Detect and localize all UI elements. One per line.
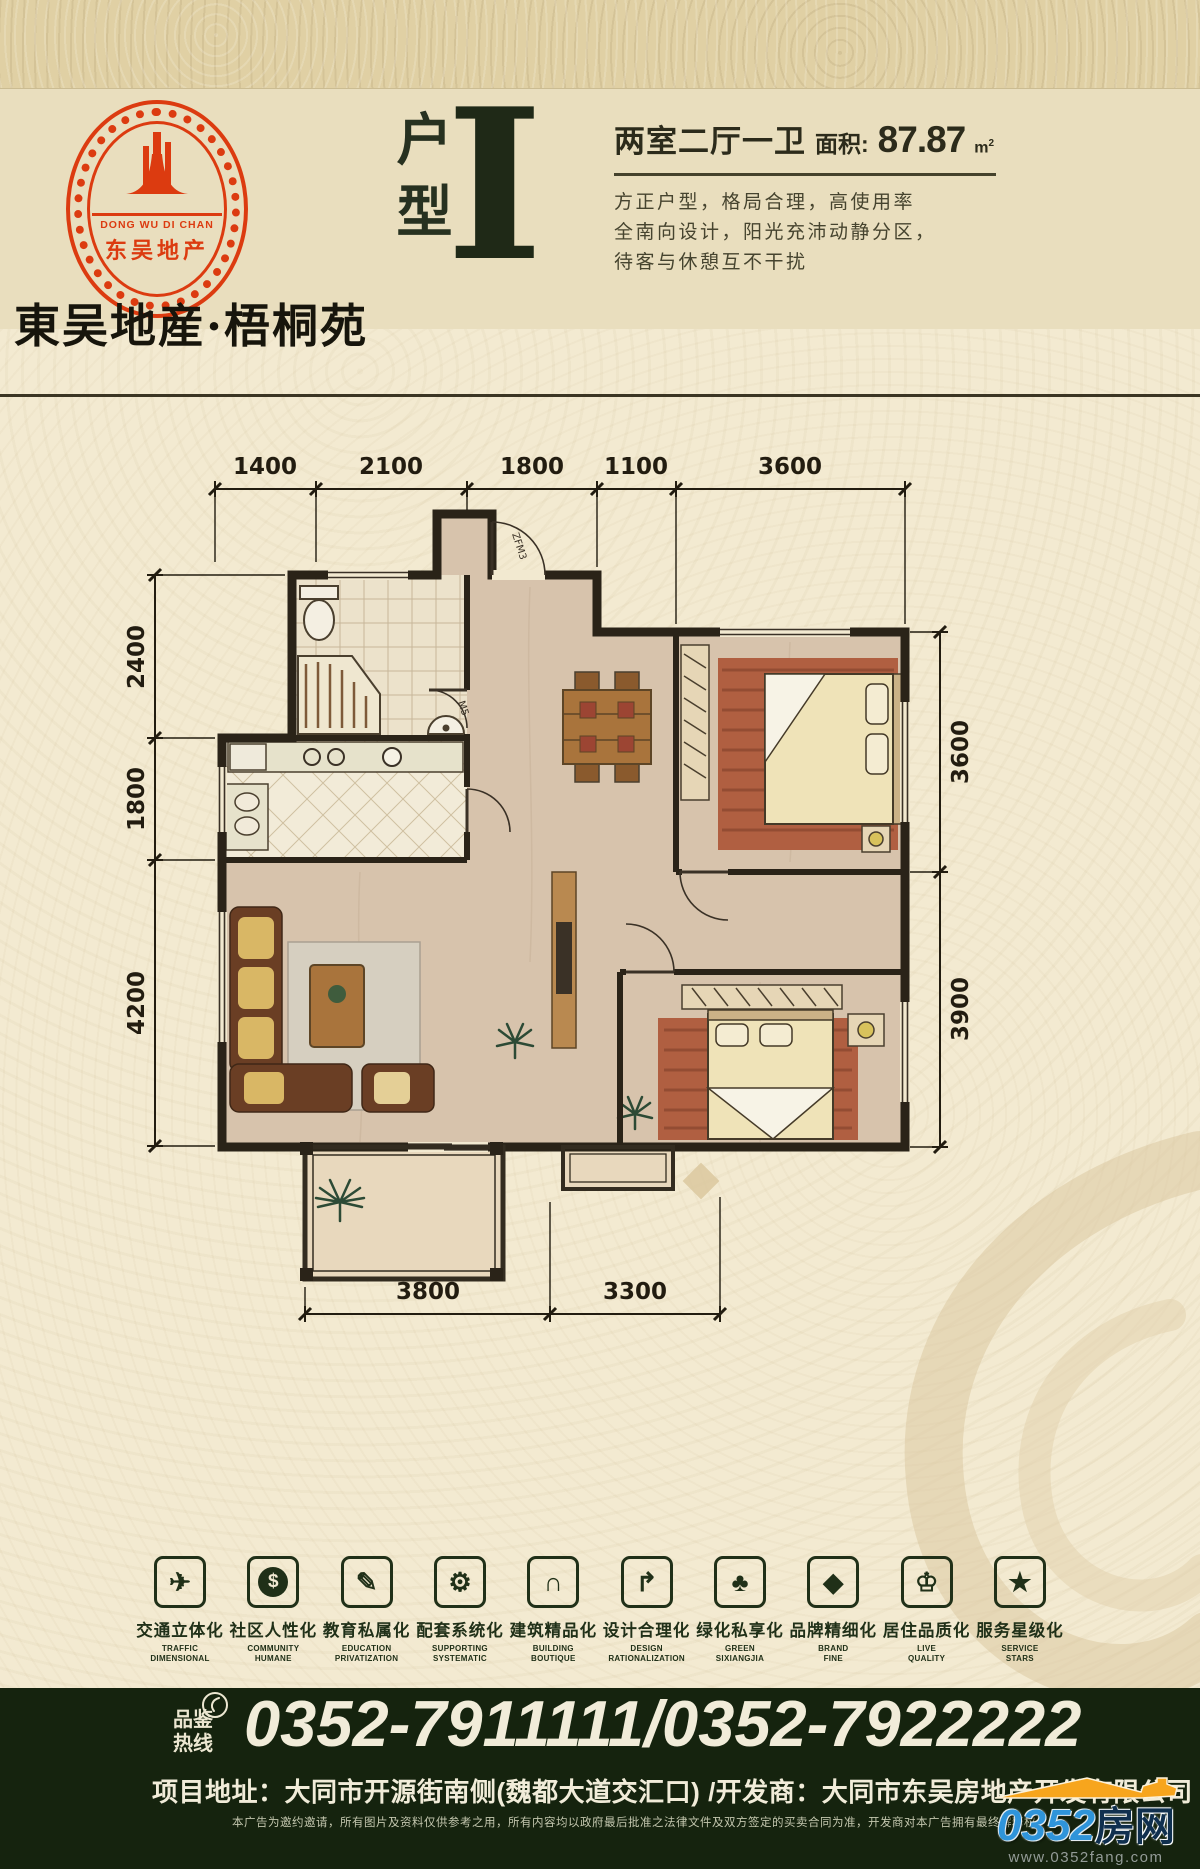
disclaimer-text: 本广告为邀约邀请，所有图片及资料仅供参考之用，所有内容均以政府最后批准之法律文件… <box>160 1814 1120 1830</box>
hotline-label: 品鉴 热线 <box>150 1708 236 1756</box>
feature-building: ∩ 建筑精品化 BUILDINGBOUTIQUE <box>507 1556 599 1663</box>
svg-text:1800: 1800 <box>124 767 150 831</box>
unit-summary-row: 两室二厅一卫 面积: 87.87 m2 <box>614 116 996 176</box>
footer-bar: 品鉴 热线 0352-7911111/0352-7922222 项目地址：大同市… <box>0 1688 1200 1869</box>
tree-icon: ♣ <box>714 1556 766 1608</box>
feature-service: ★ 服务星级化 SERVICESTARS <box>974 1556 1066 1663</box>
feature-design: ↱ 设计合理化 DESIGNRATIONALIZATION <box>601 1556 693 1663</box>
site-url: www.0352fang.com <box>986 1849 1186 1866</box>
desc-line-3: 待客与休憩互不干扰 <box>614 248 996 278</box>
svg-text:3900: 3900 <box>948 977 974 1041</box>
dollar-clock-icon: $ <box>247 1556 299 1608</box>
top-pattern-strip <box>0 0 1200 89</box>
seal-chinese-text: 东吴地产 <box>66 233 248 265</box>
svg-text:2100: 2100 <box>359 454 423 480</box>
traffic-icon: ✈ <box>154 1556 206 1608</box>
svg-text:3300: 3300 <box>603 1279 667 1305</box>
tower-icon <box>118 130 196 212</box>
site-name: 0352房网 <box>986 1805 1186 1848</box>
rooms-summary: 两室二厅一卫 <box>614 116 806 161</box>
fork-arrow-icon: ↱ <box>621 1556 673 1608</box>
header-divider <box>0 394 1200 397</box>
svg-text:1400: 1400 <box>233 454 297 480</box>
developer-label: /开发商： <box>700 1777 821 1807</box>
arch-icon: ∩ <box>527 1556 579 1608</box>
unit-spec-block: 两室二厅一卫 面积: 87.87 m2 方正户型，格局合理，高使用率 全南向设计… <box>614 116 996 278</box>
features-row: ✈ 交通立体化 TRAFFICDIMENSIONAL $ 社区人性化 COMMU… <box>134 1556 1066 1663</box>
svg-text:1800: 1800 <box>500 454 564 480</box>
svg-text:1100: 1100 <box>604 454 668 480</box>
feature-traffic: ✈ 交通立体化 TRAFFICDIMENSIONAL <box>134 1556 226 1663</box>
seal-horizontal-line <box>92 213 222 216</box>
feature-supporting: ⚙ 配套系统化 SUPPORTINGSYSTEMATIC <box>414 1556 506 1663</box>
svg-text:3600: 3600 <box>948 720 974 784</box>
unit-type-letter: I <box>446 82 543 290</box>
feature-brand: ◆ 品牌精细化 BRANDFINE <box>787 1556 879 1663</box>
svg-text:3800: 3800 <box>396 1279 460 1305</box>
feature-education: ✎ 教育私属化 EDUCATIONPRIVATIZATION <box>321 1556 413 1663</box>
site-logo: 0352房网 www.0352fang.com <box>986 1774 1186 1866</box>
crown-icon: ♔ <box>901 1556 953 1608</box>
roof-icon <box>991 1774 1181 1800</box>
poster: DONG WU DI CHAN 东吴地产 東吴地産·梧桐苑 户型 I 两室二厅一… <box>0 0 1200 1869</box>
area-value: 87.87 <box>878 119 966 161</box>
seal-english-text: DONG WU DI CHAN <box>66 219 248 231</box>
feature-community: $ 社区人性化 COMMUNITYHUMANE <box>227 1556 319 1663</box>
svg-text:3600: 3600 <box>758 454 822 480</box>
brand-calligraphy: 東吴地産·梧桐苑 <box>14 290 368 356</box>
company-seal-logo: DONG WU DI CHAN 东吴地产 <box>66 100 248 318</box>
feature-green: ♣ 绿化私享化 GREENSIXIANGJIA <box>694 1556 786 1663</box>
star-icon: ★ <box>994 1556 1046 1608</box>
area-label: 面积: <box>815 125 869 159</box>
entry-door-label: ZFM3 <box>509 532 528 562</box>
desc-line-2: 全南向设计，阳光充沛动静分区， <box>614 218 996 248</box>
address-value: 大同市开源街南侧(魏都大道交汇口) <box>285 1777 701 1807</box>
hotline-numbers: 0352-7911111/0352-7922222 <box>244 1686 1081 1761</box>
unit-description: 方正户型，格局合理，高使用率 全南向设计，阳光充沛动静分区， 待客与休憩互不干扰 <box>614 188 996 278</box>
address-label: 项目地址： <box>152 1777 285 1807</box>
education-icon: ✎ <box>341 1556 393 1608</box>
supporting-icon: ⚙ <box>434 1556 486 1608</box>
area-unit: m2 <box>974 138 994 157</box>
desc-line-1: 方正户型，格局合理，高使用率 <box>614 188 996 218</box>
svg-text:4200: 4200 <box>124 971 150 1035</box>
diamond-icon: ◆ <box>807 1556 859 1608</box>
feature-quality: ♔ 居住品质化 LIVEQUALITY <box>881 1556 973 1663</box>
svg-text:2400: 2400 <box>124 625 150 689</box>
